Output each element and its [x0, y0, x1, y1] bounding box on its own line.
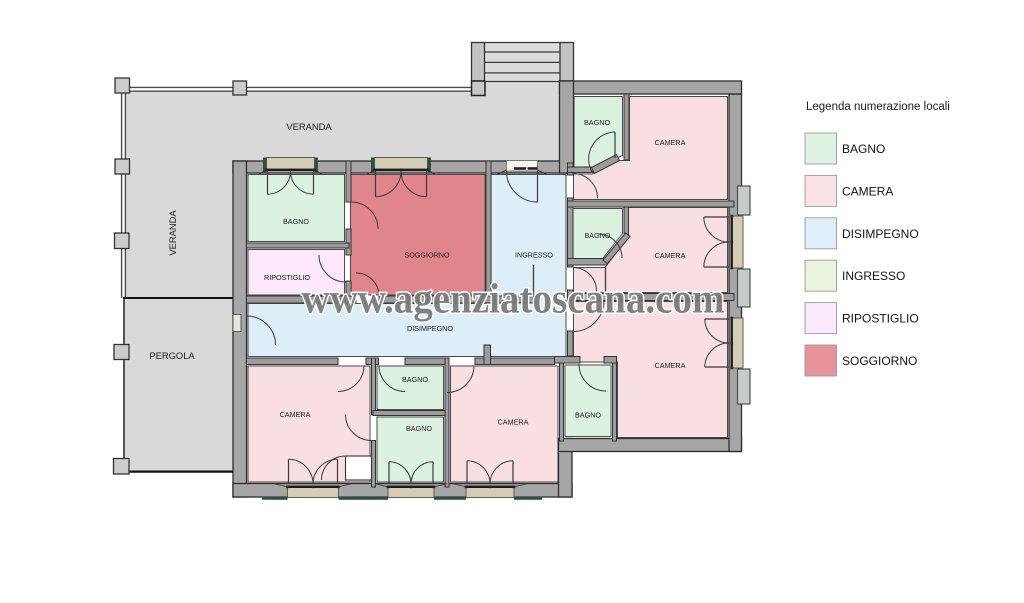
svg-text:INGRESSO: INGRESSO — [842, 269, 905, 283]
svg-text:BAGNO: BAGNO — [585, 231, 611, 240]
svg-text:CAMERA: CAMERA — [498, 418, 529, 427]
svg-text:BAGNO: BAGNO — [584, 118, 610, 127]
svg-text:SOGGIORNO: SOGGIORNO — [404, 251, 450, 260]
svg-text:BAGNO: BAGNO — [283, 217, 309, 226]
svg-text:www.agenziatoscana.com: www.agenziatoscana.com — [302, 277, 725, 323]
svg-text:CAMERA: CAMERA — [655, 251, 686, 260]
svg-text:BAGNO: BAGNO — [842, 142, 885, 156]
svg-text:VERANDA: VERANDA — [167, 210, 178, 256]
svg-text:VERANDA: VERANDA — [286, 121, 332, 132]
svg-text:CAMERA: CAMERA — [655, 138, 686, 147]
svg-text:BAGNO: BAGNO — [406, 424, 432, 433]
svg-text:CAMERA: CAMERA — [280, 410, 311, 419]
svg-text:INGRESSO: INGRESSO — [515, 251, 553, 260]
svg-text:DISIMPEGNO: DISIMPEGNO — [407, 324, 453, 333]
svg-text:CAMERA: CAMERA — [655, 361, 686, 370]
svg-text:RIPOSTIGLIO: RIPOSTIGLIO — [842, 312, 919, 326]
svg-text:PERGOLA: PERGOLA — [149, 350, 195, 361]
svg-text:CAMERA: CAMERA — [842, 184, 893, 198]
svg-text:BAGNO: BAGNO — [575, 411, 601, 420]
svg-text:BAGNO: BAGNO — [402, 375, 428, 384]
svg-text:SOGGIORNO: SOGGIORNO — [842, 354, 917, 368]
svg-text:Legenda numerazione locali: Legenda numerazione locali — [806, 101, 950, 113]
svg-text:DISIMPEGNO: DISIMPEGNO — [842, 227, 919, 241]
